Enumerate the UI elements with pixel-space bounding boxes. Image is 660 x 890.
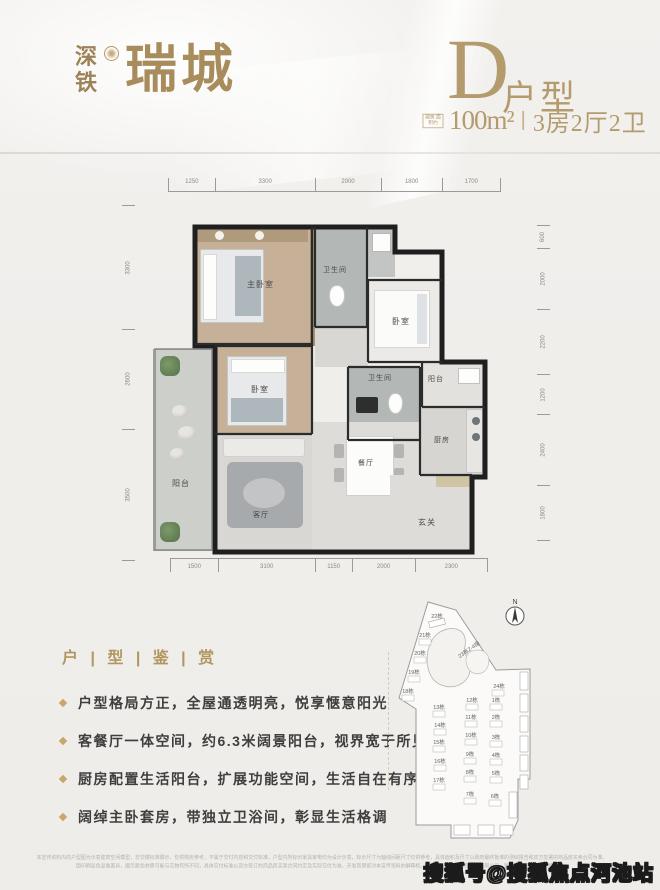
room-kitchen: 厨房 [420, 407, 485, 475]
building-label: 14栋 [434, 721, 446, 729]
watermark: 搜狐号@搜狐焦点河池站 [423, 857, 654, 886]
pebble-decor [178, 426, 196, 440]
room-label: 阳台 [172, 478, 190, 489]
entry-mat [436, 475, 470, 487]
building-label: 10栋 [465, 731, 477, 739]
decor-lamp [215, 231, 224, 240]
unit-letter: D [447, 26, 509, 112]
brand-char-2: 铁 [75, 70, 98, 96]
room-foyer: 玄关 [390, 475, 472, 552]
compass-icon: N [506, 599, 524, 625]
room-spec: 3房2厅2卫 [533, 103, 647, 138]
building-label: 16栋 [434, 757, 446, 765]
dimension-chain-left: 3300 2600 3500 [122, 205, 135, 561]
building-label: 21栋 [419, 631, 431, 639]
laundry-nook [367, 227, 395, 277]
building-label: 13栋 [433, 703, 445, 711]
wardrobe [197, 229, 308, 242]
dim-label: 2600 [126, 373, 132, 386]
dim-label: 1250 [169, 178, 215, 187]
north-label: N [512, 599, 517, 606]
building-label: 24栋 [493, 682, 505, 690]
dim-label: 2000 [353, 563, 415, 572]
building-label: 5栋 [492, 769, 501, 777]
dim-label: 1500 [171, 563, 218, 572]
decor-lamp [255, 231, 264, 240]
feature-item: 厨房配置生活阳台，扩展功能空间，生活自在有序 [60, 760, 427, 798]
building-label: 6栋 [491, 792, 500, 800]
spec-separator: | [521, 109, 526, 132]
features-list: 户型格局方正，全屋通透明亮，悦享惬意阳光 客餐厅一体空间，约6.3米阔景阳台，视… [60, 684, 427, 836]
room-balcony-main: 阳台 [153, 349, 214, 551]
dim-label: 600 [540, 232, 546, 242]
hallway [315, 327, 368, 367]
room-label: 玄关 [418, 517, 436, 528]
burner [472, 433, 480, 441]
brand-char-1: 深 [75, 44, 98, 70]
dim-label: 3300 [216, 178, 315, 187]
building-label: 20栋 [414, 649, 426, 657]
dotted-divider [388, 652, 389, 790]
room-master-bedroom: 主卧室 [195, 227, 310, 346]
diamond-bullet-icon [59, 737, 67, 745]
building-label: 9栋 [466, 750, 475, 758]
dim-label: 1700 [443, 178, 500, 187]
feature-text: 阔绰主卧套房，带独立卫浴间，彰显生活格调 [78, 807, 388, 827]
building-label: 4栋 [492, 751, 501, 759]
area-value: 100m² [449, 105, 514, 136]
header-divider [0, 152, 660, 154]
dim-label: 2200 [541, 335, 547, 348]
room-label: 卫生间 [323, 265, 347, 275]
poster-background: 深 铁 瑞城 D 户型 建筑 面积约 100m² | 3房2厅2卫 1250 3… [0, 0, 660, 890]
building-label: 2栋 [492, 713, 501, 721]
room-label: 卫生间 [368, 373, 392, 383]
dim-label: 3500 [126, 488, 132, 501]
wave-decoration [0, 0, 480, 200]
chair [334, 468, 344, 482]
building-label: 19栋 [408, 668, 420, 676]
building-label: 8栋 [466, 768, 475, 776]
dim-label: 1800 [382, 178, 442, 187]
feature-item: 客餐厅一体空间，约6.3米阔景阳台，视界宽于所见 [60, 722, 427, 760]
room-label: 主卧室 [247, 279, 274, 290]
washer [372, 233, 391, 252]
room-bedroom-mid: 卧室 [215, 346, 312, 434]
room-label: 卧室 [392, 316, 410, 327]
room-bathroom-top: 卫生间 [315, 227, 367, 327]
feature-item: 户型格局方正，全屋通透明亮，悦享惬意阳光 [60, 684, 427, 722]
burner [472, 417, 480, 425]
building-label: 7栋 [466, 790, 475, 798]
brand-logo: 深 铁 瑞城 [75, 44, 237, 99]
area-note: 建筑 面积约 [423, 113, 444, 127]
dim-label: 2300 [416, 563, 487, 572]
room-living: 客厅 [215, 434, 312, 552]
plant-icon [160, 522, 180, 542]
diamond-bullet-icon [59, 699, 67, 707]
dim-label: 1800 [541, 506, 547, 519]
dim-label: 2000 [541, 272, 547, 285]
vanity-tv [356, 397, 378, 413]
toilet [329, 285, 345, 307]
room-label: 客厅 [253, 510, 269, 520]
building-label: 1栋 [492, 696, 501, 704]
room-label: 厨房 [434, 435, 450, 445]
building-label: 11栋 [465, 713, 477, 721]
dimension-chain-bottom: 1500 3100 1150 2000 2300 [170, 558, 488, 572]
room-bedroom-right: 卧室 [368, 280, 439, 362]
pebble-decor [170, 448, 185, 460]
dim-label: 3300 [126, 261, 132, 274]
feature-text: 客餐厅一体空间，约6.3米阔景阳台，视界宽于所见 [78, 731, 427, 751]
sink [458, 368, 480, 384]
building-label: 22栋 [431, 612, 443, 620]
plant-icon [160, 356, 180, 376]
diamond-bullet-icon [59, 813, 67, 821]
floor-plan: 阳台 主卧室 卫生间 卧室 [150, 222, 510, 560]
dim-label: 1150 [316, 563, 352, 572]
chair [334, 444, 344, 458]
dimension-chain-top: 1250 3300 2000 1800 1700 [168, 178, 501, 192]
features-heading: 户 | 型 | 鉴 | 赏 [62, 644, 218, 668]
room-balcony-service: 阳台 [422, 362, 485, 407]
brand-seal-icon [104, 46, 119, 61]
pebble-decor [172, 405, 188, 418]
chair [394, 444, 404, 458]
dim-label: 2400 [541, 443, 547, 456]
building-label: 17栋 [433, 776, 445, 784]
feature-text: 厨房配置生活阳台，扩展功能空间，生活自在有序 [78, 769, 419, 789]
brand-logo-left: 深 铁 [75, 44, 98, 97]
building-label: 3栋 [492, 733, 501, 741]
site-plan: 22栋 21栋 20栋 19栋 18栋 23栋2-4座 24栋 13栋 14栋 … [392, 596, 644, 858]
dim-label: 1200 [541, 388, 547, 401]
unit-spec-row: 建筑 面积约 100m² | 3房2厅2卫 [420, 103, 647, 138]
building-label: 12栋 [466, 696, 478, 704]
feature-item: 阔绰主卧套房，带独立卫浴间，彰显生活格调 [60, 798, 427, 836]
room-label: 阳台 [428, 374, 444, 384]
room-label: 餐厅 [358, 458, 374, 468]
dimension-chain-right: 600 2000 2200 1200 2400 1800 [537, 225, 550, 541]
dim-label: 2000 [316, 178, 381, 187]
toilet [388, 393, 403, 414]
building-label: 15栋 [433, 738, 445, 746]
building-label: 18栋 [402, 687, 414, 695]
sofa [223, 438, 305, 457]
dim-label: 3100 [219, 563, 315, 572]
brand-name: 瑞城 [125, 44, 237, 99]
feature-text: 户型格局方正，全屋通透明亮，悦享惬意阳光 [78, 693, 388, 713]
diamond-bullet-icon [59, 775, 67, 783]
room-label: 卧室 [251, 384, 269, 395]
